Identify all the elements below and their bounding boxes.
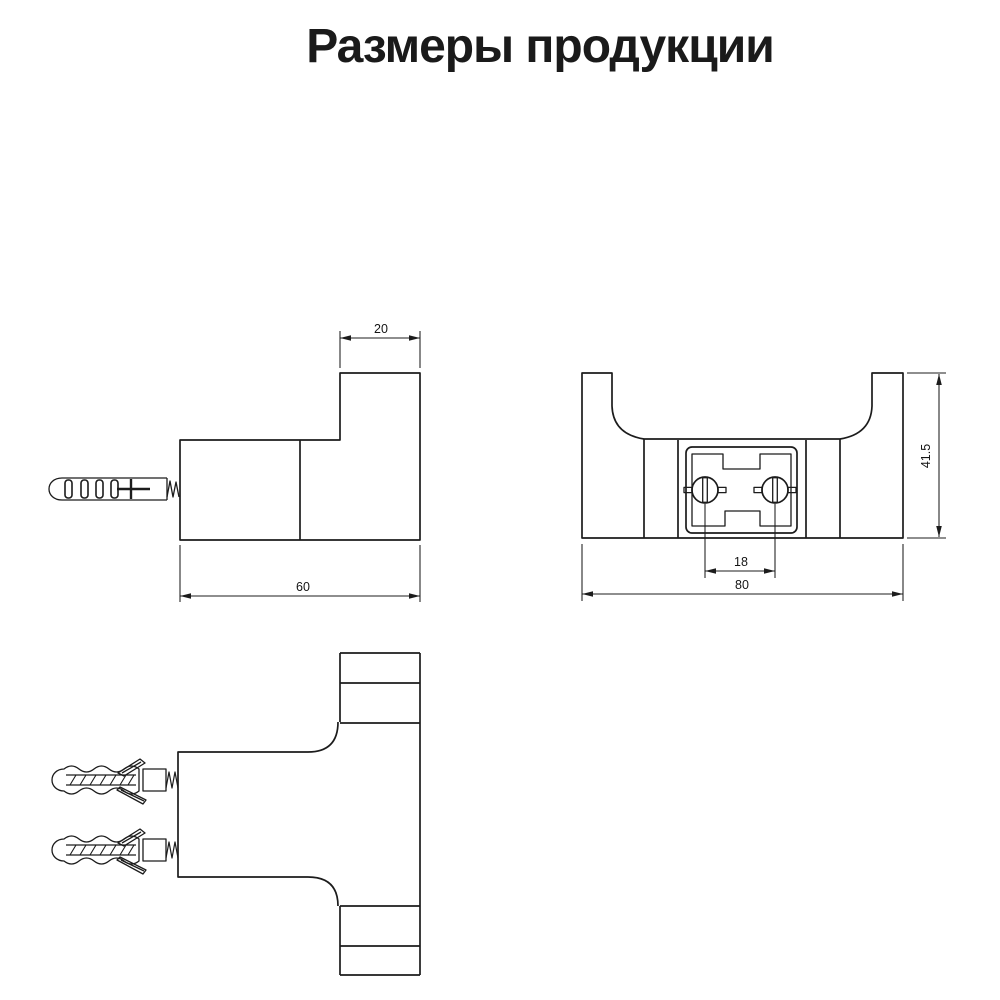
extension-line: [340, 331, 420, 368]
anchor-rib: [65, 480, 72, 498]
top-view-body-outline: [178, 722, 338, 906]
top-view-bar-outline: [340, 653, 420, 975]
dim-total-depth: 60: [180, 545, 420, 602]
front-view: 18 80 41.5: [582, 373, 946, 601]
screw-cross: [117, 479, 150, 499]
page-title: Размеры продукции: [306, 20, 773, 73]
drawing-page: Размеры продукции 20 60: [0, 0, 1000, 1000]
mounting-screw-right: [754, 477, 796, 503]
side-view: 20 60: [49, 322, 420, 602]
dim-total-width: 80: [582, 544, 903, 601]
wall-anchor-top-lower: [52, 829, 178, 874]
dimension-label: 18: [734, 555, 748, 569]
anchor-threads: [167, 481, 179, 497]
dimension-label: 60: [296, 580, 310, 594]
wall-anchor-top-upper: [52, 759, 178, 804]
front-view-inner-walls: [644, 439, 840, 538]
dimension-label: 20: [374, 322, 388, 336]
top-view: [52, 653, 420, 975]
anchor-rib: [96, 480, 103, 498]
top-view-bar-edge-lines: [340, 683, 420, 946]
dimension-label: 80: [735, 578, 749, 592]
mounting-screw-left: [684, 477, 726, 503]
anchor-rib: [81, 480, 88, 498]
wall-anchor-side: [49, 478, 179, 500]
extension-line: [582, 544, 903, 601]
technical-drawing: Размеры продукции 20 60: [0, 0, 1000, 1000]
dim-hook-depth: 20: [340, 322, 420, 368]
front-view-outline: [582, 373, 903, 538]
dim-screw-spacing: 18: [705, 504, 775, 578]
dimension-label: 41.5: [919, 444, 933, 468]
dim-total-height: 41.5: [907, 373, 946, 538]
anchor-rib: [111, 480, 118, 498]
